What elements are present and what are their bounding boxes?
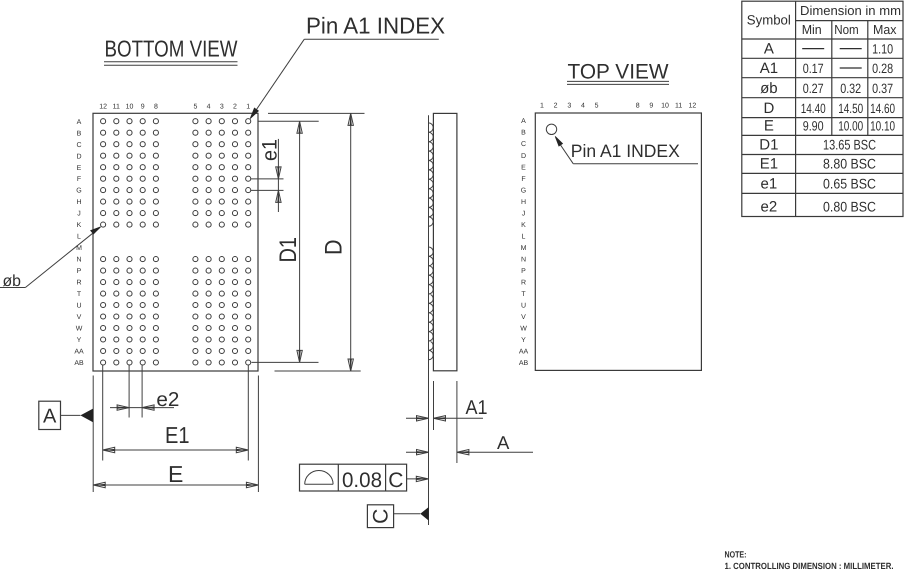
- svg-text:9: 9: [649, 103, 653, 110]
- svg-text:J: J: [77, 211, 81, 218]
- svg-text:3: 3: [567, 103, 571, 110]
- svg-text:C: C: [76, 142, 81, 149]
- svg-text:A: A: [764, 41, 774, 58]
- svg-text:5: 5: [595, 103, 599, 110]
- svg-text:K: K: [521, 222, 526, 229]
- svg-text:R: R: [521, 280, 526, 287]
- svg-text:Pin A1 INDEX: Pin A1 INDEX: [571, 141, 680, 161]
- svg-text:AB: AB: [74, 360, 84, 367]
- svg-text:10: 10: [126, 104, 134, 111]
- svg-text:A1: A1: [760, 60, 778, 77]
- svg-text:B: B: [521, 130, 526, 137]
- svg-text:E: E: [77, 165, 82, 172]
- svg-text:0.32: 0.32: [840, 81, 861, 96]
- svg-text:P: P: [521, 268, 526, 275]
- svg-text:D: D: [763, 100, 774, 117]
- svg-text:A: A: [497, 432, 510, 453]
- svg-text:G: G: [76, 188, 81, 195]
- svg-text:5: 5: [193, 104, 197, 111]
- svg-text:0.65 BSC: 0.65 BSC: [823, 176, 876, 192]
- svg-text:Y: Y: [77, 337, 82, 344]
- svg-text:C: C: [388, 469, 403, 492]
- svg-text:0.28: 0.28: [872, 61, 893, 76]
- svg-text:L: L: [77, 234, 81, 241]
- svg-text:E: E: [764, 118, 774, 135]
- svg-text:Min: Min: [802, 22, 822, 37]
- svg-text:8.80 BSC: 8.80 BSC: [823, 156, 876, 172]
- svg-text:Y: Y: [521, 337, 526, 344]
- svg-text:C: C: [521, 141, 526, 148]
- svg-text:K: K: [77, 222, 82, 229]
- svg-text:3: 3: [220, 104, 224, 111]
- svg-text:M: M: [521, 245, 527, 252]
- svg-text:A: A: [77, 119, 82, 126]
- svg-text:D: D: [320, 240, 347, 256]
- svg-text:A: A: [43, 406, 57, 428]
- svg-text:E1: E1: [165, 422, 190, 448]
- svg-text:T: T: [77, 291, 82, 298]
- svg-text:NOTE:: NOTE:: [725, 550, 747, 560]
- svg-text:J: J: [522, 210, 526, 217]
- svg-text:12: 12: [689, 103, 697, 110]
- svg-text:13.65 BSC: 13.65 BSC: [823, 137, 876, 153]
- svg-text:C: C: [370, 509, 393, 524]
- svg-text:T: T: [521, 291, 526, 298]
- svg-text:1. CONTROLLING DIMENSION : MIL: 1. CONTROLLING DIMENSION : MILLIMETER.: [725, 561, 894, 571]
- svg-text:14.40: 14.40: [801, 101, 826, 116]
- svg-text:1: 1: [246, 104, 250, 111]
- svg-text:0.80 BSC: 0.80 BSC: [823, 199, 876, 215]
- svg-text:11: 11: [113, 104, 120, 111]
- svg-text:10.00: 10.00: [838, 119, 863, 134]
- svg-text:D1: D1: [275, 237, 302, 263]
- svg-text:e2: e2: [761, 199, 778, 216]
- svg-text:Symbol: Symbol: [747, 12, 791, 27]
- svg-text:Dimension in mm: Dimension in mm: [800, 3, 901, 18]
- svg-text:4: 4: [581, 103, 585, 110]
- svg-text:0.08: 0.08: [342, 469, 382, 492]
- svg-text:Nom: Nom: [834, 22, 859, 37]
- svg-text:E: E: [521, 164, 526, 171]
- svg-text:D: D: [76, 153, 81, 160]
- svg-text:N: N: [76, 257, 81, 264]
- svg-text:H: H: [76, 199, 81, 206]
- svg-text:H: H: [521, 199, 526, 206]
- svg-text:e1: e1: [259, 139, 282, 161]
- svg-text:0.37: 0.37: [872, 81, 893, 96]
- svg-text:BOTTOM VIEW: BOTTOM VIEW: [105, 36, 238, 62]
- svg-text:U: U: [76, 303, 81, 310]
- svg-text:0.17: 0.17: [803, 61, 824, 76]
- svg-text:0.27: 0.27: [803, 81, 824, 96]
- svg-text:V: V: [521, 314, 526, 321]
- svg-text:L: L: [522, 233, 526, 240]
- svg-text:E: E: [168, 461, 183, 487]
- svg-text:AA: AA: [519, 349, 529, 356]
- svg-text:F: F: [521, 176, 525, 183]
- svg-text:e1: e1: [761, 176, 778, 193]
- svg-text:10: 10: [661, 103, 669, 110]
- svg-text:R: R: [76, 280, 81, 287]
- svg-text:4: 4: [207, 104, 211, 111]
- svg-text:Pin A1 INDEX: Pin A1 INDEX: [306, 13, 445, 39]
- svg-text:G: G: [521, 187, 526, 194]
- svg-text:1: 1: [540, 103, 544, 110]
- svg-text:8: 8: [636, 103, 640, 110]
- svg-text:14.60: 14.60: [870, 101, 895, 116]
- svg-text:D: D: [521, 153, 526, 160]
- svg-text:N: N: [521, 256, 526, 263]
- svg-text:P: P: [77, 268, 82, 275]
- svg-text:11: 11: [675, 103, 682, 110]
- svg-text:8: 8: [154, 104, 158, 111]
- svg-text:9.90: 9.90: [803, 119, 824, 134]
- svg-text:E1: E1: [760, 156, 778, 173]
- svg-text:TOP VIEW: TOP VIEW: [568, 60, 669, 83]
- svg-text:øb: øb: [760, 80, 778, 97]
- svg-text:14.50: 14.50: [838, 101, 863, 116]
- svg-text:9: 9: [141, 104, 145, 111]
- svg-text:A: A: [521, 118, 526, 125]
- svg-text:B: B: [77, 130, 82, 137]
- svg-text:W: W: [520, 326, 527, 333]
- svg-text:A1: A1: [466, 397, 488, 419]
- svg-text:U: U: [521, 303, 526, 310]
- svg-text:12: 12: [99, 104, 107, 111]
- svg-text:D1: D1: [759, 137, 778, 154]
- svg-text:2: 2: [233, 104, 237, 111]
- svg-text:V: V: [77, 314, 82, 321]
- svg-text:2: 2: [554, 103, 558, 110]
- svg-text:e2: e2: [156, 389, 179, 411]
- svg-text:10.10: 10.10: [870, 119, 895, 134]
- svg-text:F: F: [77, 176, 81, 183]
- svg-text:AB: AB: [519, 360, 529, 367]
- svg-text:AA: AA: [74, 349, 84, 356]
- svg-text:1.10: 1.10: [872, 42, 893, 57]
- svg-text:Max: Max: [873, 22, 897, 37]
- svg-text:W: W: [76, 326, 83, 333]
